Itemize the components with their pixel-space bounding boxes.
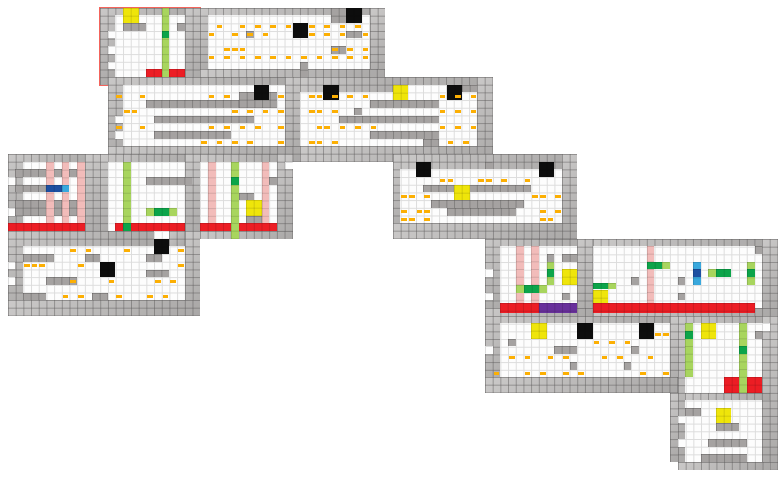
room-a[interactable]	[100, 8, 200, 85]
tile-map-canvas	[0, 0, 779, 479]
black-block[interactable]	[100, 262, 115, 277]
green-dark-segment[interactable]	[739, 346, 747, 354]
item-dash	[309, 95, 315, 98]
black-block[interactable]	[577, 323, 592, 338]
shelf-segment	[562, 293, 570, 301]
item-dash	[232, 110, 238, 113]
item-dash	[278, 95, 284, 98]
red-strip[interactable]	[500, 303, 539, 313]
shelf-segment	[631, 346, 639, 354]
shelf-segment	[554, 346, 577, 354]
item-dash	[301, 56, 307, 59]
item-dash	[209, 33, 215, 36]
yellow-block[interactable]	[701, 323, 716, 338]
item-dash	[217, 25, 223, 28]
wall-segment	[370, 8, 385, 77]
room-h[interactable]	[8, 231, 201, 316]
item-dash	[347, 95, 353, 98]
item-dash	[540, 210, 546, 213]
room-e[interactable]	[8, 154, 100, 239]
wall-segment	[670, 393, 678, 462]
item-dash	[340, 25, 346, 28]
yellow-block[interactable]	[531, 323, 546, 338]
wall-segment	[577, 239, 592, 316]
shelf-segment	[146, 270, 169, 278]
green-dark-segment[interactable]	[647, 262, 662, 270]
wall-segment	[100, 154, 108, 239]
floor-gap	[762, 323, 770, 331]
item-dash	[232, 33, 238, 36]
item-dash	[286, 25, 292, 28]
green-dark-segment[interactable]	[123, 223, 131, 231]
item-dash	[255, 25, 261, 28]
wall-segment	[85, 154, 100, 239]
item-dash	[609, 341, 615, 344]
item-dash	[140, 126, 146, 129]
black-block[interactable]	[539, 162, 554, 177]
item-dash	[132, 110, 138, 113]
item-dash	[24, 264, 30, 267]
item-dash	[163, 295, 169, 298]
room-i[interactable]	[393, 154, 578, 239]
floor-gap	[108, 62, 116, 70]
item-dash	[371, 126, 377, 129]
wall-segment	[8, 231, 154, 246]
shelf-segment	[701, 454, 747, 462]
green-light-segment[interactable]	[539, 285, 547, 293]
item-dash	[525, 356, 531, 359]
item-dash	[278, 126, 284, 129]
item-dash	[501, 179, 507, 182]
room-g[interactable]	[200, 154, 292, 239]
item-dash	[270, 25, 276, 28]
item-dash	[317, 95, 323, 98]
room-b[interactable]	[200, 8, 385, 77]
shelf-segment	[269, 177, 277, 185]
item-dash	[39, 264, 45, 267]
shelf-segment	[354, 108, 362, 116]
item-dash	[201, 141, 207, 144]
floor-gap	[115, 131, 123, 139]
shelf-segment	[755, 246, 763, 254]
green-dark-segment[interactable]	[747, 269, 755, 277]
item-dash	[317, 56, 323, 59]
green-dark-segment[interactable]	[716, 269, 731, 277]
item-dash	[471, 95, 477, 98]
item-dash	[247, 110, 253, 113]
pink-column[interactable]	[516, 246, 524, 308]
item-dash	[448, 141, 454, 144]
shelf-segment	[678, 277, 686, 285]
shelf-segment	[146, 254, 161, 262]
item-dash	[147, 295, 153, 298]
shelf-segment	[370, 131, 439, 139]
black-block[interactable]	[639, 323, 654, 338]
item-dash	[602, 356, 608, 359]
item-dash	[555, 210, 561, 213]
wall-segment	[200, 69, 385, 77]
item-dash	[324, 126, 330, 129]
green-light-segment[interactable]	[231, 223, 239, 238]
item-dash	[255, 126, 261, 129]
item-dash	[309, 25, 315, 28]
wall-segment	[169, 231, 184, 246]
item-dash	[363, 33, 369, 36]
red-strip[interactable]	[8, 223, 85, 231]
wall-segment	[108, 77, 301, 85]
shelf-segment	[370, 100, 439, 108]
green-light-segment[interactable]	[146, 208, 154, 216]
item-dash	[663, 333, 669, 336]
yellow-block[interactable]	[562, 269, 577, 284]
black-block[interactable]	[154, 239, 169, 254]
item-dash	[355, 25, 361, 28]
item-dash	[170, 280, 176, 283]
item-dash	[525, 372, 531, 375]
pink-column[interactable]	[531, 246, 539, 308]
green-dark-segment[interactable]	[524, 285, 539, 293]
wall-segment	[485, 316, 678, 324]
item-dash	[463, 141, 469, 144]
item-dash	[617, 356, 623, 359]
item-dash	[440, 95, 446, 98]
item-dash	[332, 48, 338, 51]
shelf-segment	[146, 100, 238, 108]
shelf-segment	[447, 208, 516, 216]
item-dash	[471, 126, 477, 129]
item-dash	[540, 195, 546, 198]
item-dash	[317, 110, 323, 113]
item-dash	[209, 95, 215, 98]
item-dash	[86, 249, 92, 252]
item-dash	[155, 280, 161, 283]
item-dash	[178, 264, 184, 267]
green-dark-segment[interactable]	[547, 269, 555, 277]
item-dash	[347, 48, 353, 51]
green-light-segment[interactable]	[123, 162, 131, 231]
item-dash	[409, 218, 415, 221]
shelf-segment	[678, 293, 686, 301]
green-dark-segment[interactable]	[162, 31, 170, 39]
floor-gap	[115, 116, 123, 124]
item-dash	[224, 48, 230, 51]
yellow-block[interactable]	[454, 185, 469, 200]
green-light-segment[interactable]	[169, 208, 177, 216]
item-dash	[563, 356, 569, 359]
shelf-segment	[23, 254, 54, 262]
floor-gap	[8, 277, 16, 285]
item-dash	[340, 126, 346, 129]
black-block[interactable]	[416, 162, 431, 177]
shelf-segment	[547, 254, 555, 262]
item-dash	[209, 56, 215, 59]
item-dash	[494, 372, 500, 375]
item-dash	[448, 179, 454, 182]
item-dash	[78, 295, 84, 298]
item-dash	[140, 95, 146, 98]
item-dash	[409, 195, 415, 198]
item-dash	[401, 210, 407, 213]
shelf-segment	[716, 423, 739, 431]
black-block[interactable]	[323, 85, 338, 100]
floor-gap	[678, 439, 686, 447]
item-dash	[332, 110, 338, 113]
shelf-segment	[239, 193, 254, 201]
item-dash	[440, 126, 446, 129]
yellow-block[interactable]	[246, 200, 261, 215]
item-dash	[309, 141, 315, 144]
blue-light-segment[interactable]	[62, 185, 70, 193]
item-dash	[317, 141, 323, 144]
item-dash	[324, 33, 330, 36]
item-dash	[247, 141, 253, 144]
item-dash	[209, 126, 215, 129]
pink-column[interactable]	[647, 246, 655, 308]
wall-segment	[678, 462, 770, 470]
item-dash	[124, 249, 130, 252]
item-dash	[455, 126, 461, 129]
shelf-segment	[154, 116, 254, 124]
item-dash	[116, 95, 122, 98]
item-dash	[525, 179, 531, 182]
item-dash	[355, 126, 361, 129]
item-dash	[594, 341, 600, 344]
black-block[interactable]	[254, 85, 269, 100]
item-dash	[340, 33, 346, 36]
item-dash	[424, 218, 430, 221]
wall-segment	[678, 316, 686, 470]
green-light-segment[interactable]	[162, 8, 170, 85]
red-strip[interactable]	[724, 377, 739, 392]
item-dash	[232, 48, 238, 51]
shelf-segment	[23, 293, 46, 301]
wall-segment	[593, 239, 778, 247]
shelf-segment	[423, 185, 531, 193]
item-dash	[240, 48, 246, 51]
pink-column[interactable]	[77, 162, 85, 224]
wall-segment	[185, 154, 200, 239]
wall-segment	[485, 377, 678, 392]
floor-gap	[8, 262, 16, 270]
pink-column[interactable]	[208, 162, 216, 224]
yellow-block[interactable]	[123, 8, 138, 23]
item-dash	[278, 110, 284, 113]
item-dash	[424, 195, 430, 198]
item-dash	[548, 356, 554, 359]
purple-strip[interactable]	[539, 303, 578, 313]
item-dash	[655, 333, 661, 336]
item-dash	[363, 48, 369, 51]
shelf-segment	[562, 254, 577, 262]
item-dash	[224, 56, 230, 59]
floor-gap	[8, 177, 16, 185]
room-c[interactable]	[108, 77, 301, 162]
item-dash	[124, 110, 130, 113]
item-dash	[363, 95, 369, 98]
item-dash	[540, 218, 546, 221]
item-dash	[417, 210, 423, 213]
shelf-segment	[570, 362, 578, 370]
item-dash	[663, 372, 669, 375]
green-light-segment[interactable]	[662, 262, 670, 270]
pink-column[interactable]	[62, 162, 70, 224]
yellow-block[interactable]	[593, 290, 608, 304]
green-dark-segment[interactable]	[685, 331, 693, 339]
item-dash	[217, 141, 223, 144]
shelf-segment	[508, 339, 516, 347]
green-light-segment[interactable]	[708, 269, 716, 277]
item-dash	[224, 126, 230, 129]
item-dash	[317, 126, 323, 129]
green-dark-segment[interactable]	[231, 177, 239, 185]
green-light-segment[interactable]	[516, 285, 524, 293]
item-dash	[270, 56, 276, 59]
shelf-segment	[708, 439, 747, 447]
shelf-segment	[346, 31, 361, 39]
pink-column[interactable]	[46, 162, 54, 224]
wall-segment	[485, 239, 500, 316]
item-dash	[32, 264, 38, 267]
room-l[interactable]	[485, 316, 678, 393]
item-dash	[455, 95, 461, 98]
room-j[interactable]	[485, 239, 593, 316]
floor-gap	[108, 31, 116, 39]
shelf-segment	[300, 62, 308, 77]
item-dash	[509, 356, 515, 359]
item-dash	[648, 356, 654, 359]
floor-gap	[485, 293, 493, 301]
shelf-segment	[123, 23, 146, 31]
black-block[interactable]	[293, 23, 308, 38]
wall-segment	[200, 8, 208, 77]
green-light-segment[interactable]	[231, 162, 239, 224]
shelf-segment	[85, 254, 100, 262]
green-dark-segment[interactable]	[593, 283, 608, 290]
item-dash	[309, 110, 315, 113]
item-dash	[532, 195, 538, 198]
item-dash	[286, 56, 292, 59]
room-d[interactable]	[300, 77, 493, 162]
room-k[interactable]	[593, 239, 778, 316]
shelf-segment	[685, 408, 700, 416]
shelf-segment	[146, 177, 192, 185]
yellow-block[interactable]	[716, 408, 731, 423]
wall-segment	[393, 223, 578, 238]
floor-gap	[8, 208, 16, 216]
red-strip[interactable]	[200, 223, 277, 231]
red-strip[interactable]	[747, 377, 762, 392]
item-dash	[563, 372, 569, 375]
green-light-segment[interactable]	[739, 323, 747, 392]
item-dash	[548, 218, 554, 221]
shelf-segment	[154, 131, 231, 139]
wall-segment	[685, 393, 770, 401]
yellow-block[interactable]	[393, 85, 408, 100]
item-dash	[78, 264, 84, 267]
item-dash	[278, 141, 284, 144]
pink-column[interactable]	[262, 162, 270, 224]
item-dash	[455, 110, 461, 113]
item-dash	[486, 179, 492, 182]
floor-gap	[485, 346, 493, 354]
shelf-segment	[631, 277, 639, 285]
green-light-segment[interactable]	[608, 283, 616, 290]
item-dash	[440, 179, 446, 182]
wall-segment	[185, 8, 200, 85]
item-dash	[578, 372, 584, 375]
red-strip[interactable]	[593, 303, 755, 313]
item-dash	[555, 195, 561, 198]
item-dash	[109, 280, 115, 283]
item-dash	[347, 56, 353, 59]
item-dash	[263, 110, 269, 113]
item-dash	[116, 126, 122, 129]
item-dash	[240, 56, 246, 59]
item-dash	[540, 372, 546, 375]
item-dash	[363, 56, 369, 59]
item-dash	[63, 295, 69, 298]
floor-gap	[285, 162, 293, 170]
blue-dark-segment[interactable]	[46, 185, 61, 193]
item-dash	[424, 210, 430, 213]
blue-dark-segment[interactable]	[693, 269, 701, 277]
shelf-segment	[431, 200, 523, 208]
item-dash	[401, 195, 407, 198]
item-dash	[324, 25, 330, 28]
floor-gap	[485, 269, 493, 277]
item-dash	[401, 218, 407, 221]
item-dash	[440, 110, 446, 113]
item-dash	[224, 95, 230, 98]
item-dash	[332, 95, 338, 98]
item-dash	[70, 280, 76, 283]
item-dash	[471, 110, 477, 113]
green-dark-segment[interactable]	[154, 208, 169, 216]
floor-gap	[108, 46, 116, 54]
room-m[interactable]	[678, 316, 778, 470]
black-block[interactable]	[447, 85, 462, 100]
wall-segment	[8, 300, 201, 315]
item-dash	[232, 141, 238, 144]
shelf-segment	[423, 139, 438, 147]
item-dash	[70, 249, 76, 252]
item-dash	[332, 56, 338, 59]
wall-segment	[200, 231, 292, 239]
item-dash	[332, 141, 338, 144]
item-dash	[625, 341, 631, 344]
shelf-segment	[246, 216, 261, 224]
item-dash	[240, 25, 246, 28]
item-dash	[640, 372, 646, 375]
item-dash	[478, 179, 484, 182]
shelf-segment	[177, 23, 185, 31]
shelf-segment	[485, 162, 493, 170]
shelf-segment	[331, 8, 346, 23]
black-block[interactable]	[346, 8, 361, 23]
item-dash	[178, 249, 184, 252]
item-dash	[116, 295, 122, 298]
item-dash	[263, 33, 269, 36]
item-dash	[309, 33, 315, 36]
wall-segment	[762, 239, 777, 316]
item-dash	[247, 33, 253, 36]
shelf-segment	[462, 85, 477, 93]
floor-gap	[678, 416, 686, 424]
shelf-segment	[624, 362, 632, 370]
item-dash	[240, 126, 246, 129]
room-f[interactable]	[100, 154, 200, 239]
shelf-segment	[339, 116, 439, 124]
